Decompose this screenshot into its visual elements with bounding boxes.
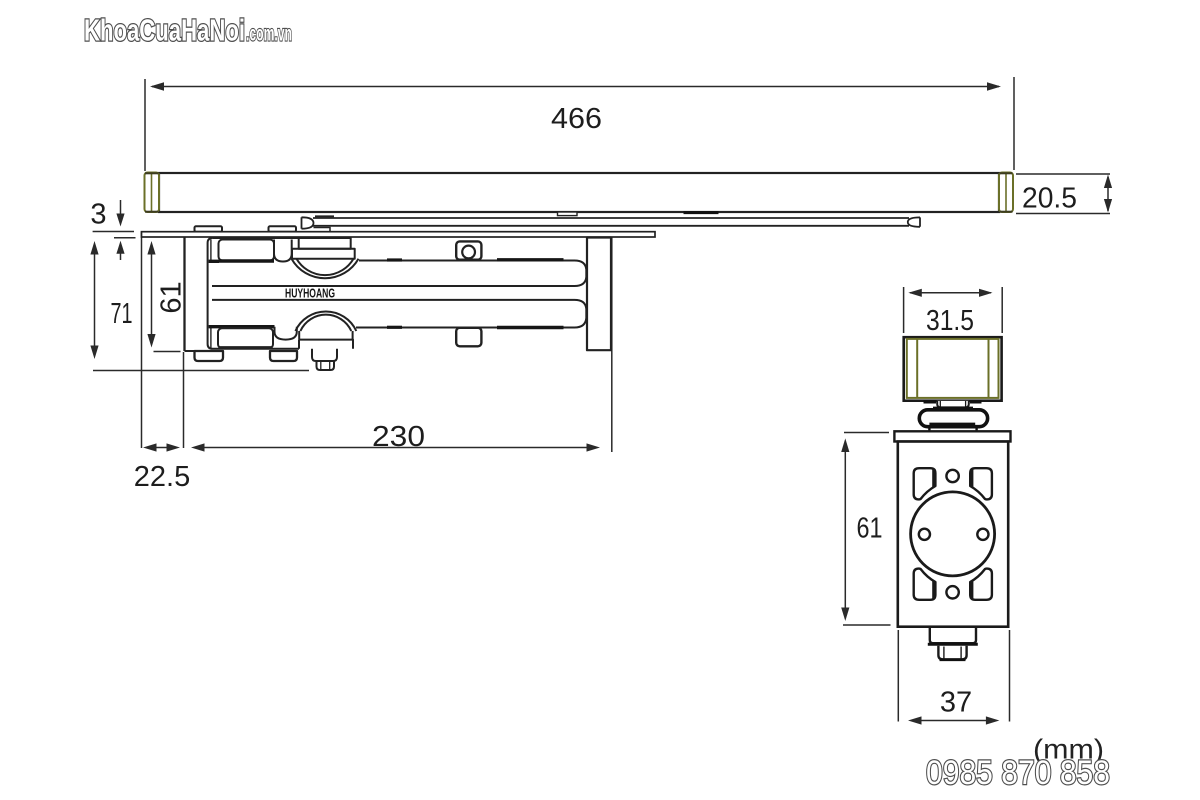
svg-text:71: 71	[111, 298, 133, 330]
svg-text:3: 3	[90, 199, 106, 231]
svg-text:61: 61	[156, 281, 188, 313]
svg-text:466: 466	[551, 103, 602, 135]
svg-text:22.5: 22.5	[134, 461, 190, 493]
svg-text:0985 870 858: 0985 870 858	[926, 754, 1110, 792]
svg-text:HUYHOANG: HUYHOANG	[285, 287, 335, 301]
svg-text:31.5: 31.5	[926, 305, 974, 337]
svg-text:61: 61	[857, 513, 883, 545]
svg-text:230: 230	[372, 421, 425, 453]
svg-text:KhoaCuaHaNoi: KhoaCuaHaNoi	[84, 14, 245, 48]
svg-text:37: 37	[940, 687, 972, 719]
svg-text:.com.vn: .com.vn	[246, 22, 292, 46]
svg-text:20.5: 20.5	[1022, 183, 1077, 215]
